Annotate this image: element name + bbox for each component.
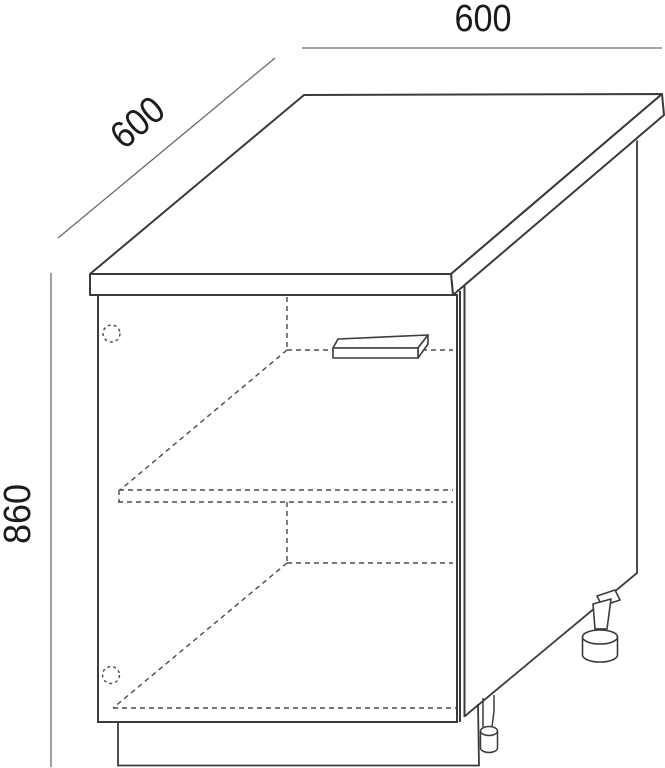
foot-leg xyxy=(593,599,611,629)
cabinet-technical-drawing: 600 600 860 xyxy=(0,0,665,768)
countertop-front-edge-face xyxy=(90,274,453,295)
foot-cylinder-top xyxy=(481,727,498,736)
foot-cylinder-bottom xyxy=(481,748,498,753)
dimension-label-height: 860 xyxy=(0,484,39,544)
adjustable-foot-rear xyxy=(583,590,621,662)
drawing-canvas: 600 600 860 xyxy=(0,0,665,768)
handle-front-face xyxy=(333,348,418,358)
foot-cylinder-top xyxy=(583,630,618,644)
door-gap-double-line xyxy=(460,286,465,722)
drawer-handle xyxy=(333,335,428,358)
dimension-label-depth: 600 xyxy=(103,89,174,158)
dimension-label-top-width: 600 xyxy=(455,0,512,40)
cabinet-front-face xyxy=(98,295,457,722)
countertop-slab xyxy=(90,94,664,295)
adjustable-foot-front xyxy=(481,695,498,753)
foot-cylinder-bottom xyxy=(583,655,618,662)
